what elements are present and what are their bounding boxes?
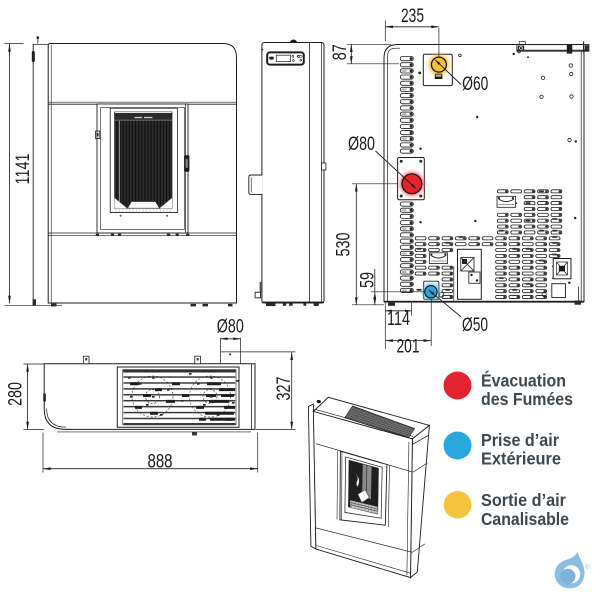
svg-text:Sortie d’air: Sortie d’air <box>481 490 566 510</box>
svg-text:Évacuation: Évacuation <box>481 370 566 391</box>
svg-text:59: 59 <box>357 272 379 288</box>
svg-text:1141: 1141 <box>12 154 34 185</box>
svg-text:201: 201 <box>397 336 420 358</box>
svg-text:Prise d’air: Prise d’air <box>481 430 559 450</box>
svg-text:Ø80: Ø80 <box>348 133 375 155</box>
svg-text:235: 235 <box>401 5 424 27</box>
svg-text:114: 114 <box>387 308 410 330</box>
svg-text:Canalisable: Canalisable <box>481 509 569 529</box>
svg-text:888: 888 <box>148 450 173 472</box>
svg-text:327: 327 <box>273 377 295 401</box>
svg-text:Ø50: Ø50 <box>462 314 488 336</box>
svg-text:530: 530 <box>333 232 355 256</box>
svg-text:Extérieure: Extérieure <box>481 448 561 468</box>
svg-text:Ø60: Ø60 <box>462 73 488 95</box>
svg-text:Ø80: Ø80 <box>217 315 244 337</box>
svg-text:87: 87 <box>329 44 351 60</box>
svg-text:®: ® <box>585 564 590 571</box>
svg-text:280: 280 <box>5 382 27 406</box>
svg-text:des Fumées: des Fumées <box>481 389 573 409</box>
